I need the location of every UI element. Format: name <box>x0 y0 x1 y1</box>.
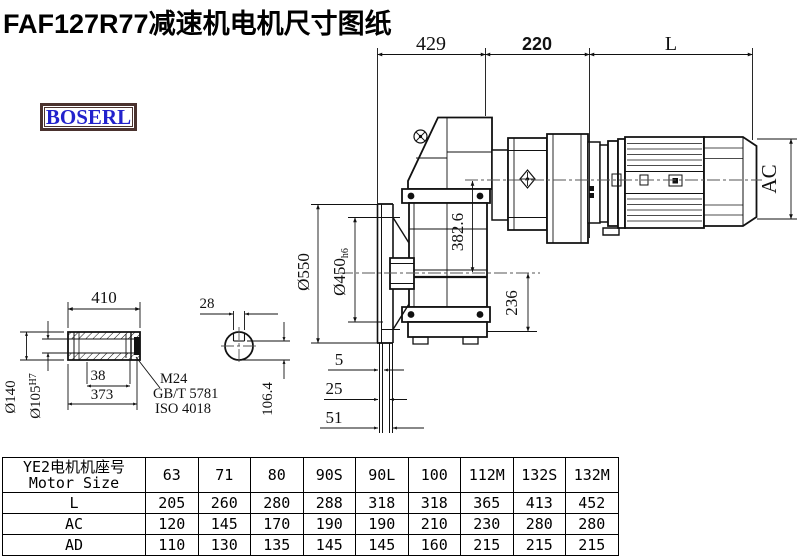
cell-L-80: 280 <box>251 493 304 514</box>
gearbox-side-view <box>402 118 492 345</box>
table-row: L 205 260 280 288 318 318 365 413 452 <box>3 493 619 514</box>
dim-5-label: 5 <box>335 350 344 369</box>
cell-AD-132M: 215 <box>566 535 619 556</box>
cell-AC-90L: 190 <box>356 514 409 535</box>
dim-25-label: 25 <box>326 379 343 398</box>
cell-AD-71: 130 <box>198 535 251 556</box>
dim-410-label: 410 <box>91 288 117 307</box>
cell-AC-71: 145 <box>198 514 251 535</box>
dim-51-label: 51 <box>326 408 343 427</box>
cell-AD-112M: 215 <box>461 535 514 556</box>
standard-iso-label: ISO 4018 <box>155 401 211 417</box>
dim-28-label: 28 <box>200 296 215 312</box>
breather-bolt-icon <box>414 130 427 143</box>
row-label-L: L <box>3 493 146 514</box>
col-90S: 90S <box>303 458 356 493</box>
col-132S: 132S <box>513 458 566 493</box>
retaining-bolt <box>134 337 140 355</box>
motor-side-view <box>600 137 757 235</box>
dim-106-label: 106.4 <box>260 382 276 416</box>
table-row-header: YE2电机机座号 Motor Size <box>3 458 146 493</box>
gear-adapter <box>492 134 600 243</box>
row-label-AC: AC <box>3 514 146 535</box>
dim-220-label: 220 <box>522 34 552 54</box>
dim-L-label: L <box>665 33 677 55</box>
cell-L-71: 260 <box>198 493 251 514</box>
dim-382-label: 382.6 <box>448 213 467 251</box>
table-row: AC 120 145 170 190 190 210 230 280 280 <box>3 514 619 535</box>
col-90L: 90L <box>356 458 409 493</box>
fan-cover <box>704 137 757 226</box>
cell-AC-132S: 280 <box>513 514 566 535</box>
cell-L-100: 318 <box>408 493 461 514</box>
hollow-shaft-stub <box>390 258 414 289</box>
row-label-AD: AD <box>3 535 146 556</box>
dim-AC-label: AC <box>757 164 781 193</box>
col-112M: 112M <box>461 458 514 493</box>
cell-AD-90L: 145 <box>356 535 409 556</box>
col-80: 80 <box>251 458 304 493</box>
col-63: 63 <box>146 458 199 493</box>
drawing-page: FAF127R77减速机电机尺寸图纸 BOSERL <box>0 0 800 557</box>
leader-line <box>136 357 160 388</box>
cell-L-112M: 365 <box>461 493 514 514</box>
cell-AC-63: 120 <box>146 514 199 535</box>
cell-L-132S: 413 <box>513 493 566 514</box>
cell-AC-100: 210 <box>408 514 461 535</box>
col-100: 100 <box>408 458 461 493</box>
dim-550-label: Ø550 <box>294 253 313 291</box>
dim-450-label: Ø450h6 <box>330 248 351 296</box>
cell-AD-63: 110 <box>146 535 199 556</box>
dim-236-label: 236 <box>502 290 521 316</box>
thread-spec-label: M24 <box>160 371 188 387</box>
cell-AC-90S: 190 <box>303 514 356 535</box>
cell-L-90L: 318 <box>356 493 409 514</box>
dim-38-label: 38 <box>91 368 106 384</box>
table-header-cn: YE2电机机座号 <box>3 459 145 475</box>
dim-140-label: Ø140 <box>3 380 19 413</box>
dim-105-label: Ø105H7 <box>28 373 44 419</box>
cell-AD-100: 160 <box>408 535 461 556</box>
standard-gbt-label: GB/T 5781 <box>153 386 218 402</box>
cell-AC-80: 170 <box>251 514 304 535</box>
cell-L-90S: 288 <box>303 493 356 514</box>
shaft-detail-view <box>68 332 160 388</box>
cell-AC-112M: 230 <box>461 514 514 535</box>
col-71: 71 <box>198 458 251 493</box>
motor-size-table: YE2电机机座号 Motor Size 63 71 80 90S 90L 100… <box>2 457 619 556</box>
cell-L-63: 205 <box>146 493 199 514</box>
cell-AD-132S: 215 <box>513 535 566 556</box>
col-132M: 132M <box>566 458 619 493</box>
dim-373-label: 373 <box>91 387 114 403</box>
cell-AD-90S: 145 <box>303 535 356 556</box>
table-header-en: Motor Size <box>3 475 145 491</box>
cell-AD-80: 135 <box>251 535 304 556</box>
dim-429-label: 429 <box>416 33 446 55</box>
cell-L-132M: 452 <box>566 493 619 514</box>
table-row: AD 110 130 135 145 145 160 215 215 215 <box>3 535 619 556</box>
cell-AC-132M: 280 <box>566 514 619 535</box>
